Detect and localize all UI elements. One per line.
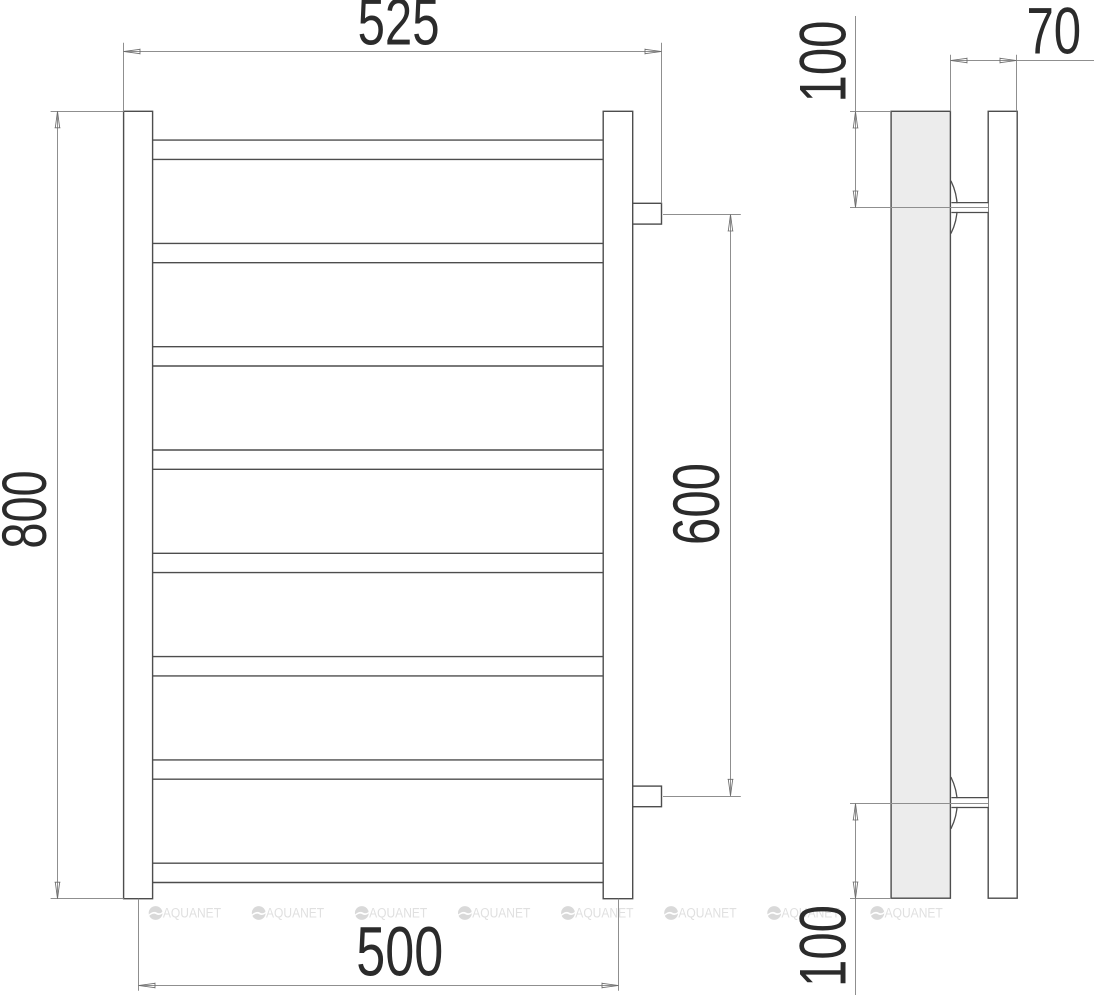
svg-text:AQUANET: AQUANET	[885, 905, 943, 921]
svg-text:500: 500	[356, 913, 443, 991]
svg-text:525: 525	[358, 0, 440, 59]
svg-text:AQUANET: AQUANET	[472, 905, 530, 921]
svg-text:100: 100	[787, 20, 861, 102]
svg-text:100: 100	[787, 905, 861, 987]
svg-text:AQUANET: AQUANET	[266, 905, 324, 921]
svg-text:600: 600	[660, 463, 734, 545]
svg-text:800: 800	[0, 470, 59, 548]
svg-text:AQUANET: AQUANET	[575, 905, 633, 921]
svg-text:AQUANET: AQUANET	[163, 905, 221, 921]
svg-text:AQUANET: AQUANET	[678, 905, 736, 921]
svg-text:70: 70	[1026, 0, 1081, 68]
